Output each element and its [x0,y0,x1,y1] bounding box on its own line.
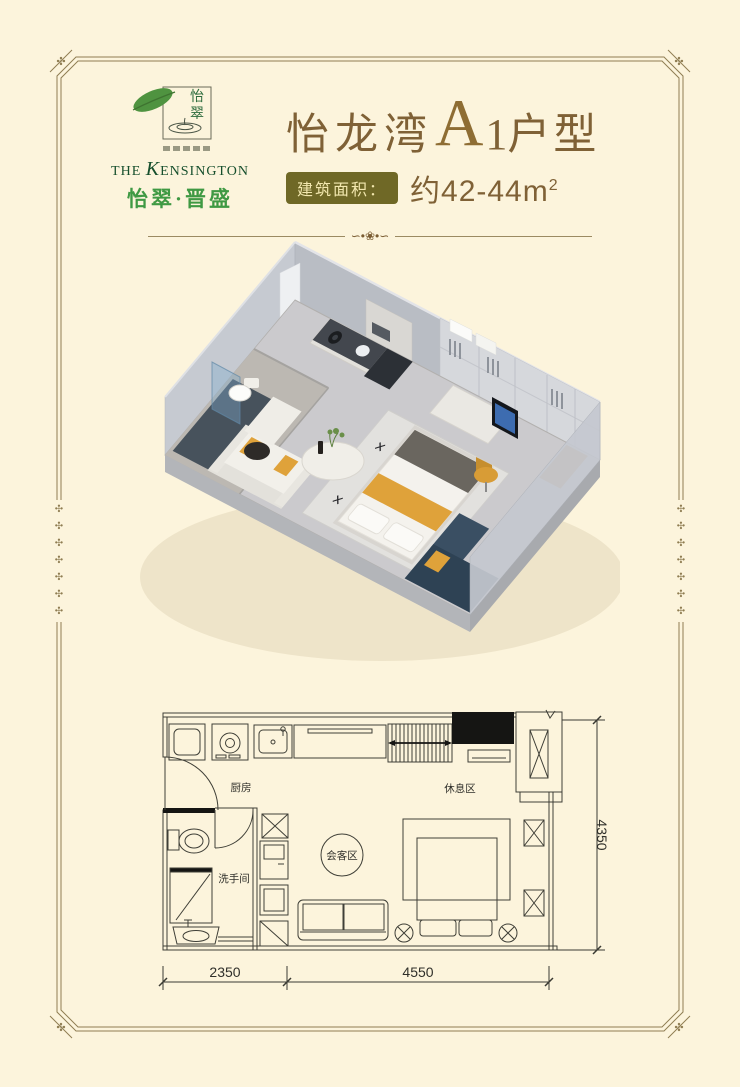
edge-cross-icon: ✣ [55,504,63,515]
corner-ornament-icon: ✣ [674,1022,683,1034]
edge-cross-icon: ✣ [55,521,63,532]
edge-cross-icon: ✣ [677,504,685,515]
brand-name-cn: 怡翠·晋盛 [100,183,260,213]
dim-4550: 4550 [402,964,433,980]
label-bathroom: 洗手间 [218,872,250,885]
brand-en-initial: K [146,158,160,180]
plan-bed [395,819,544,942]
area-superscript: 2 [549,177,559,194]
corner-ornament-icon: ✣ [674,56,683,68]
project-name: 怡龙湾 [286,114,433,157]
logo-tagline-marks [163,146,210,151]
area-value: 约42-44m2 [410,166,559,210]
area-row: 建筑面积： 约42-44m2 [286,166,606,210]
logo-seal-char-top: 怡 [190,89,204,105]
plan-flue [262,814,288,838]
logo-seal-char-bottom: 翠 [190,107,204,122]
plan-sofa [298,900,388,940]
plan-cabinets [260,841,288,946]
area-number: 约42-44m [410,175,549,208]
plan-break-line [546,710,555,718]
title-block: 怡龙湾 A 1 户型 建筑面积： 约42-44m2 [286,90,606,210]
edge-cross-icon: ✣ [677,555,685,566]
area-badge: 建筑面积： [286,172,398,204]
plan-column-shaft [516,710,562,802]
unit-suffix: 户型 [507,114,599,157]
brand-logo: 怡 翠 THE KENSINGTON 怡翠·晋盛 [100,84,260,213]
edge-cross-icon: ✣ [55,555,63,566]
plan-threshold [218,937,253,941]
brand-en-rest: ENSINGTON [160,164,249,179]
isometric-apartment-render: ✕ ✕ ✕ ✕ ✕ ✕ ✕ ✕ ✕ ✕ ✕ ✕ [120,235,620,700]
plan-wardrobe [388,724,452,762]
edge-cross-icon: ✣ [677,572,685,583]
dim-4350: 4350 [594,819,610,850]
label-kitchen: 厨房 [231,781,252,794]
logo-seal-characters: 怡 翠 [190,89,204,122]
edge-cross-icon: ✣ [55,606,63,617]
plan-doors [165,757,253,848]
dim-2350: 2350 [209,964,240,980]
leaf-icon [130,84,176,117]
edge-cross-icon: ✣ [677,589,685,600]
label-rest: 休息区 [444,782,476,795]
brand-logo-icon: 怡 翠 [125,84,235,154]
edge-cross-icon: ✣ [677,606,685,617]
page-title: 怡龙湾 A 1 户型 [286,90,606,157]
corner-ornament-icon: ✣ [56,1022,65,1034]
floor-plan: 厨房 洗手间 会客区 休息区 2350 4550 4350 [150,698,615,1008]
corner-ornament-icon: ✣ [56,56,65,68]
plan-shelf [468,750,510,762]
edge-cross-icon: ✣ [55,572,63,583]
unit-letter: A [435,90,483,157]
brand-en-the: THE [111,164,141,179]
plan-kitchen-fixtures [169,724,386,760]
plan-wall-solid [163,808,215,813]
plan-closet-solid [452,712,514,744]
edge-cross-icon: ✣ [55,538,63,549]
label-living: 会客区 [326,849,358,862]
plan-bathroom-fixtures [168,829,253,944]
brand-name-en: THE KENSINGTON [100,158,260,181]
unit-number: 1 [485,113,507,157]
poster: ✣ ✣ ✣ ✣ ✣ ✣ ✣ ✣ ✣ ✣ ✣ ✣ ✣ ✣ ✣ ✣ ✣ ✣ [0,0,740,1087]
edge-cross-icon: ✣ [55,589,63,600]
edge-cross-icon: ✣ [677,521,685,532]
edge-cross-icon: ✣ [677,538,685,549]
render-side-table [244,442,270,460]
